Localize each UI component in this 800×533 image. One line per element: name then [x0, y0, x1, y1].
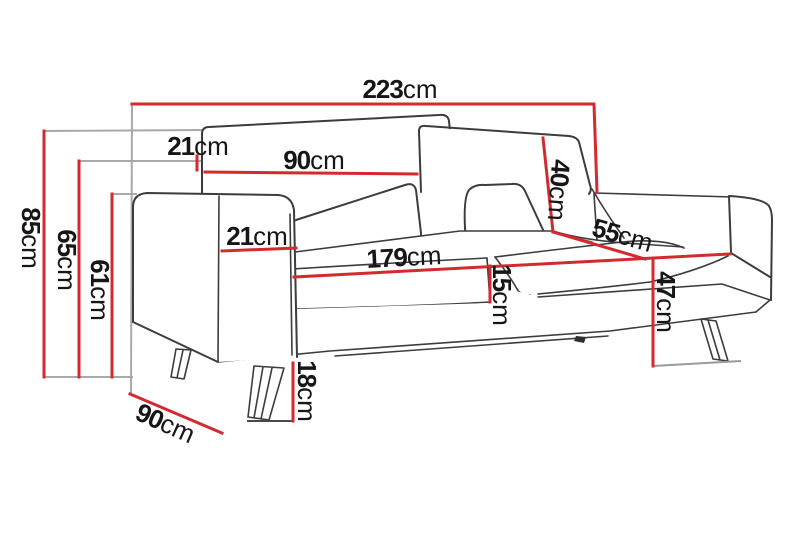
label-back-cushion-height: 40cm: [542, 158, 576, 222]
label-total-depth: 90cm: [131, 397, 199, 449]
sofa-drawing: [133, 114, 772, 420]
label-armrest-width: 21cm: [226, 221, 288, 251]
label-seat-width: 179cm: [366, 240, 443, 274]
diagram-canvas: 223cm 85cm 65cm 61cm 21cm 90cm 21cm 179c…: [0, 0, 800, 533]
label-total-height: 85cm: [16, 207, 46, 269]
floor-line-right: [653, 361, 741, 366]
label-leg-height: 18cm: [292, 360, 322, 422]
armrest-right: [729, 196, 772, 300]
label-seat-height: 47cm: [651, 271, 681, 333]
label-total-width: 223cm: [362, 74, 437, 104]
armrest-left: [133, 193, 297, 362]
ext-line-left-vertical: [131, 104, 132, 393]
label-back-cushion-width: 90cm: [283, 145, 345, 175]
base-frame-nub: [574, 336, 586, 343]
label-cushion-thickness: 15cm: [487, 264, 517, 326]
label-arm-height: 61cm: [85, 259, 115, 321]
sofa-dimension-diagram: 223cm 85cm 65cm 61cm 21cm 90cm 21cm 179c…: [0, 0, 800, 533]
label-back-height: 65cm: [52, 229, 82, 291]
label-backrest-top-depth: 21cm: [167, 131, 229, 161]
